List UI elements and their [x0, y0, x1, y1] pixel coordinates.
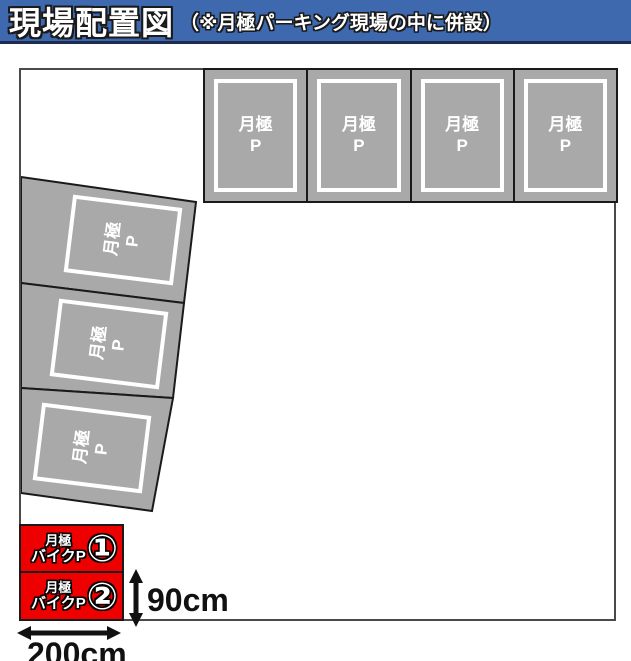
circled-number-1: ① — [87, 530, 118, 567]
parking-space-label: 月極 P — [101, 221, 146, 260]
page-title: 現場配置図 — [9, 0, 174, 44]
p-mark: P — [90, 431, 114, 467]
parking-space-label: 月極 P — [87, 325, 132, 364]
angled-parking-space-1: 月極 P — [64, 195, 183, 286]
p-mark: P — [107, 327, 131, 363]
page: 現場配置図 （※月極パーキング現場の中に併設） 月極 P 月極 P — [0, 0, 631, 661]
bike-label-line2: バイクP — [31, 596, 86, 611]
bike-label-line2: バイクP — [31, 549, 86, 564]
bike-label-line1: 月極 — [31, 581, 86, 594]
space-name: 月極 — [101, 221, 125, 257]
p-mark: P — [121, 223, 145, 259]
angled-parking-space-3: 月極 P — [33, 403, 152, 494]
page-title-note: （※月極パーキング現場の中に併設） — [180, 8, 502, 35]
bike-parking-space-2: 月極 バイクP ② — [19, 571, 124, 621]
width-dimension-label: 200cm — [27, 638, 127, 661]
space-name: 月極 — [87, 325, 111, 361]
header: 現場配置図 （※月極パーキング現場の中に併設） — [0, 0, 631, 44]
bike-label-line1: 月極 — [31, 534, 86, 547]
bike-parking-stack: 月極 バイクP ① 月極 バイクP ② — [19, 524, 124, 621]
angled-parking-space-2: 月極 P — [50, 299, 169, 390]
space-name: 月極 — [70, 429, 94, 465]
parking-space-label: 月極 P — [70, 429, 115, 468]
circled-number-2: ② — [87, 578, 118, 615]
site-plan: 月極 P 月極 P 月極 P — [19, 68, 616, 621]
height-dimension-arrow-icon — [128, 569, 144, 627]
height-dimension-label: 90cm — [147, 584, 229, 616]
bike-space-label: 月極 バイクP — [31, 534, 86, 564]
bike-space-label: 月極 バイクP — [31, 581, 86, 611]
bike-parking-space-1: 月極 バイクP ① — [19, 524, 124, 573]
